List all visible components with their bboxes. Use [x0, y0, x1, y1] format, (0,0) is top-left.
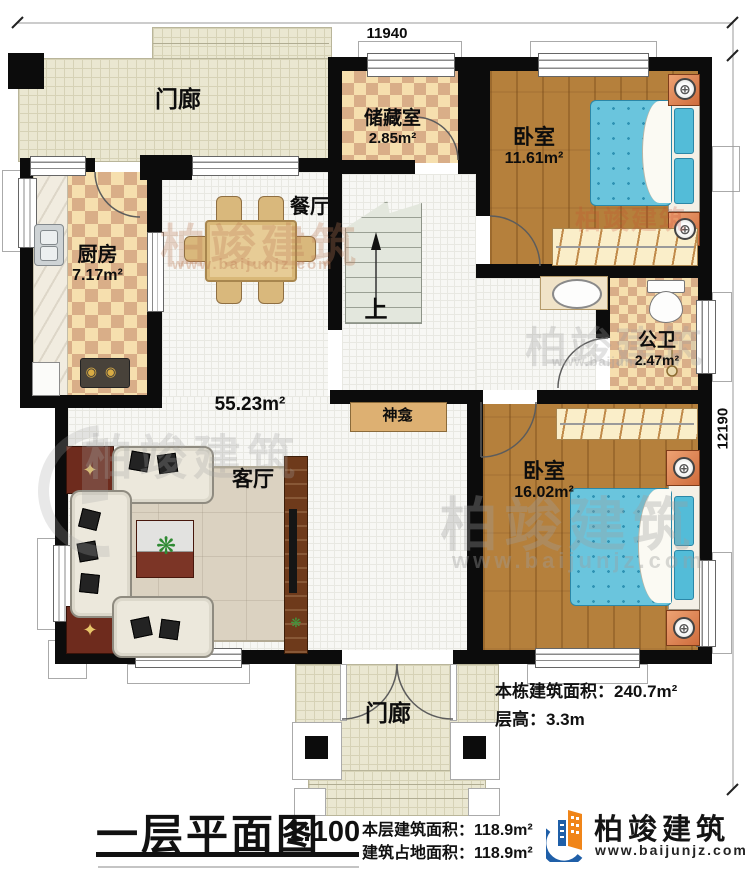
annotation-total-area: 本栋建筑面积：240.7m² [495, 678, 677, 706]
hall-area-label: 55.23m² [200, 394, 300, 416]
wall-stair-left [328, 57, 342, 330]
wall-kitchen-bottom [20, 395, 162, 408]
wall-storage-bottom [342, 160, 415, 174]
lamp-icon: ⊕ [673, 457, 695, 479]
wall-porch-kitchen-c [297, 158, 328, 172]
sofa-cushion [79, 573, 100, 594]
brand-logo-mark [546, 806, 590, 862]
wall-bedroom2-top-right [537, 390, 712, 404]
plant-icon: ❋ [288, 615, 304, 631]
plant-icon: ❋ [153, 534, 179, 560]
window-kitchen-top [30, 156, 86, 176]
star-icon: ✦ [82, 620, 97, 641]
fridge [32, 362, 60, 396]
sink-basin [40, 230, 58, 245]
lamp-icon: ⊕ [674, 78, 696, 100]
stove: ◉◉ [80, 358, 130, 388]
storage-name: 储藏室 [340, 108, 445, 130]
wall-bedroom2-left [467, 390, 483, 664]
tv-screen [289, 509, 297, 593]
brand-logo: 柏竣建筑 www.baijunjz.com [546, 804, 746, 866]
title-underline-thick [96, 852, 359, 857]
window-storage-top [367, 53, 455, 77]
kitchen-area: 7.17m² [50, 267, 145, 285]
lamp-glyph: ⊕ [679, 221, 691, 238]
lamp-icon: ⊕ [674, 218, 696, 240]
bedroom2-name: 卧室 [490, 460, 598, 484]
porch-column [305, 736, 328, 759]
lamp-glyph: ⊕ [678, 460, 690, 477]
floor-plan-canvas: ◉◉ ⊕ ⊕ ⊕ ⊕ ✦ ✦ ❋ ❋ [0, 0, 750, 873]
wardrobe-rail [560, 423, 694, 425]
porch-top-step-line [153, 43, 329, 44]
bed1-blanket [642, 101, 671, 203]
bedroom1-name: 卧室 [478, 126, 590, 150]
dining-table [205, 220, 297, 282]
stairs-up-label: 上 [358, 296, 394, 322]
annotation-floor-height: 层高：3.3m [495, 706, 677, 734]
plant-glyph: ❋ [156, 533, 176, 560]
bedroom1-area: 11.61m² [478, 150, 590, 168]
title-underline-thin [98, 866, 359, 868]
wall-kitchen-right-b [147, 310, 162, 408]
wall-kitchen-right-a [147, 158, 162, 232]
bed1-pillow [674, 108, 694, 154]
room-label-porch-bottom: 门廊 [338, 700, 438, 726]
window-bedroom2-bottom [535, 648, 640, 668]
room-label-bedroom1: 卧室 11.61m² [478, 126, 590, 169]
porch-step-line-1 [308, 784, 484, 785]
porch-column-base [468, 788, 500, 816]
burner-icon: ◉ [105, 364, 124, 379]
wall-porch-kitchen-a [20, 158, 30, 172]
bed1-pillow [674, 158, 694, 204]
plant-glyph: ❋ [291, 615, 302, 630]
room-label-bathroom: 公卫 2.47m² [614, 330, 700, 368]
porch-column [463, 736, 486, 759]
bedroom2-area: 16.02m² [490, 484, 598, 502]
room-label-living: 客厅 [210, 468, 296, 492]
room-label-kitchen: 厨房 7.17m² [50, 244, 145, 285]
bathroom-area: 2.47m² [614, 352, 700, 368]
kitchen-name: 厨房 [50, 244, 145, 267]
wall-storage-right [458, 57, 476, 174]
corner-trim [712, 146, 740, 192]
bed2-blanket [638, 489, 671, 603]
room-label-porch-top: 门廊 [128, 86, 228, 112]
wash-basin [552, 279, 602, 309]
bathroom-name: 公卫 [614, 330, 700, 352]
sofa-cushion [130, 616, 153, 639]
room-label-dining: 餐厅 [278, 196, 342, 219]
plan-scale: 1:100 [286, 816, 366, 849]
footer-footprint-area: 建筑占地面积：118.9m² [362, 842, 533, 865]
dimension-height: 12190 [714, 384, 731, 474]
lamp-glyph: ⊕ [678, 620, 690, 637]
logo-building-blue [558, 820, 566, 846]
annotation-block: 本栋建筑面积：240.7m² 层高：3.3m [495, 678, 677, 734]
logo-building-orange [568, 810, 582, 850]
shrine-label: 神龛 [360, 407, 435, 424]
window-dining-top [192, 156, 299, 176]
bed2-pillow [674, 496, 694, 546]
wardrobe-rail [556, 246, 694, 248]
room-label-bedroom2: 卧室 16.02m² [490, 460, 598, 503]
burner-icon: ◉ [86, 364, 105, 379]
toilet-bowl [649, 291, 683, 323]
door-leaf [450, 664, 457, 721]
lamp-glyph: ⊕ [679, 81, 691, 98]
bed2-pillow [674, 550, 694, 600]
watermark-logo-building [82, 438, 108, 505]
sofa-cushion [159, 619, 180, 640]
porch-step-line-2 [308, 798, 484, 799]
footer-floor-area: 本层建筑面积：118.9m² [362, 819, 533, 842]
room-label-storage: 储藏室 2.85m² [340, 108, 445, 147]
footer-areas: 本层建筑面积：118.9m² 建筑占地面积：118.9m² [362, 819, 533, 865]
window-kitchen-pass [147, 232, 164, 312]
pillar-top-left [8, 53, 44, 89]
lamp-icon: ⊕ [673, 617, 695, 639]
storage-area: 2.85m² [340, 130, 445, 147]
brand-website: www.baijunjz.com [595, 842, 748, 858]
dimension-width: 11940 [352, 25, 422, 42]
bedroom2-wardrobe [556, 408, 698, 440]
window-bedroom1-top [538, 53, 649, 77]
